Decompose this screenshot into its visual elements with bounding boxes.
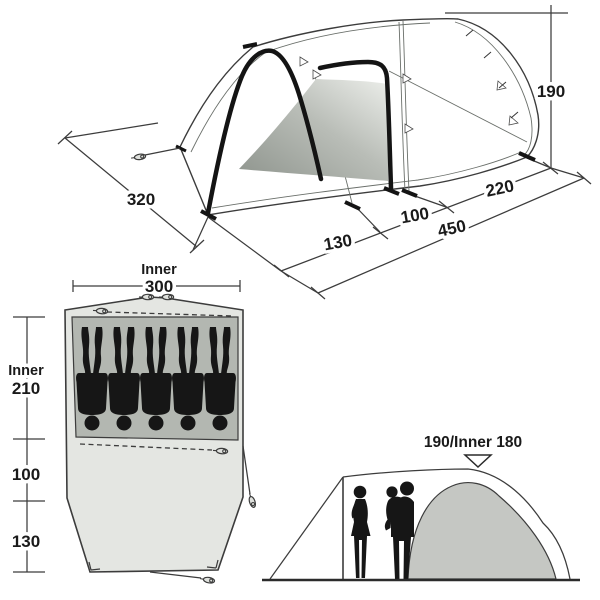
floorplan-depth-title: Inner bbox=[8, 363, 44, 379]
perspective-view: 320 130 100 450 220 190 bbox=[58, 5, 591, 299]
diagram-canvas: 320 130 100 450 220 190 Inner 300 bbox=[0, 0, 600, 600]
guy-line bbox=[145, 148, 180, 155]
elevation-height-label: 190/Inner 180 bbox=[424, 434, 522, 451]
dim-label-living-depth: 220 bbox=[484, 176, 516, 200]
guy-line bbox=[150, 572, 201, 578]
dome-door bbox=[408, 483, 556, 579]
guy-line bbox=[243, 446, 250, 494]
tent-3d bbox=[131, 19, 539, 219]
floorplan-depth-value: 210 bbox=[12, 379, 40, 398]
dim-label-width: 320 bbox=[127, 190, 155, 209]
floorplan-width-title: Inner bbox=[141, 262, 177, 278]
dim-label-front-depth: 130 bbox=[322, 231, 353, 255]
standing-person-icon bbox=[351, 486, 371, 578]
tent-peg-icon bbox=[247, 493, 257, 509]
floorplan-mid-depth: 100 bbox=[12, 465, 40, 484]
tent-peg-icon bbox=[131, 153, 146, 160]
floor-plan-view: Inner 300 Inner bbox=[8, 262, 256, 584]
down-arrow-icon bbox=[465, 455, 491, 467]
dim-label-total-length: 450 bbox=[436, 216, 468, 240]
floorplan-width-value: 300 bbox=[145, 277, 173, 296]
dim-label-height: 190 bbox=[537, 82, 565, 101]
dim-label-mid-depth: 100 bbox=[399, 204, 430, 228]
tent-spec-diagram: 320 130 100 450 220 190 Inner 300 bbox=[0, 0, 600, 600]
elevation-slope-line bbox=[270, 477, 343, 579]
floorplan-front-depth: 130 bbox=[12, 532, 40, 551]
elevation-view: 190/Inner 180 bbox=[262, 434, 580, 580]
tent-peg-icon bbox=[200, 576, 215, 584]
